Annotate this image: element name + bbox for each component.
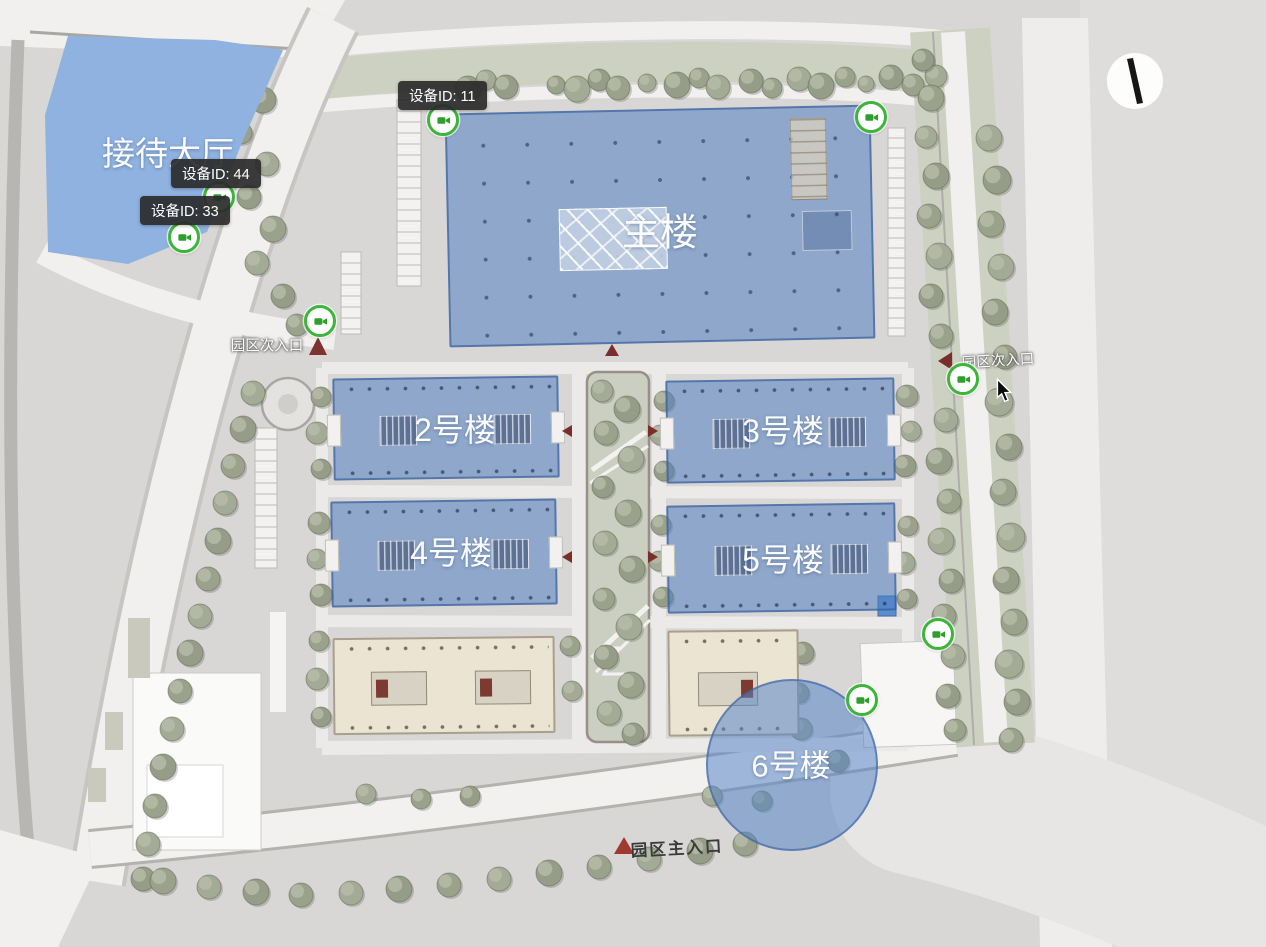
building-label-5: 5号楼 [742,535,824,581]
main-entrance-arrow-icon [605,344,619,356]
west-entrance-arrow-icon [309,337,327,355]
camera-icon [855,693,870,708]
device-marker-2[interactable] [855,101,887,133]
camera-icon [177,230,192,245]
device-tooltip-44: 设备ID: 44 [171,159,261,188]
building-label-4: 4号楼 [410,528,492,574]
camera-icon [436,113,451,128]
device-marker-7[interactable] [922,618,954,650]
device-tooltip-33: 设备ID: 33 [140,196,230,225]
camera-icon [956,372,971,387]
building-label-6: 6号楼 [751,741,830,786]
mouse-cursor [996,378,1013,409]
east-entrance-arrow-icon [938,352,952,370]
device-marker-6[interactable] [947,363,979,395]
camera-icon [864,110,879,125]
device-marker-33[interactable] [168,221,200,253]
device-marker-5[interactable] [304,305,336,337]
building-label-2: 2号楼 [414,405,496,451]
camera-icon [931,627,946,642]
campus-map-canvas[interactable]: 接待大厅 主楼 2号楼 3号楼 4号楼 5号楼 6号楼 园区次入口 园区次入口 … [0,0,1266,947]
building-label-main: 主楼 [622,202,698,257]
device-tooltip-11: 设备ID: 11 [398,81,487,110]
camera-icon [313,314,328,329]
building-label-3: 3号楼 [742,406,824,452]
entrance-label-west: 园区次入口 [231,335,304,356]
device-marker-8[interactable] [846,684,878,716]
entrance-label-south: 园区主入口 [630,833,724,862]
